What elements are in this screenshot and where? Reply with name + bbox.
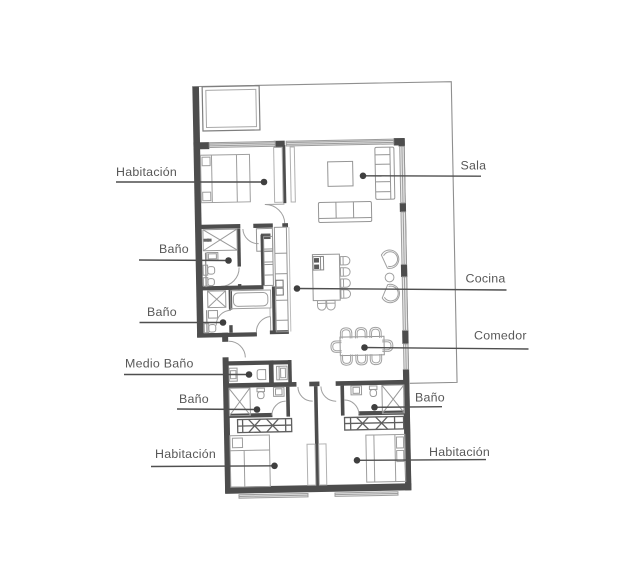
svg-text:Baño: Baño [179,392,209,406]
svg-text:Habitación: Habitación [155,447,216,461]
svg-text:Baño: Baño [159,242,189,256]
svg-text:Habitación: Habitación [429,445,490,459]
svg-text:Cocina: Cocina [466,272,506,286]
svg-text:Comedor: Comedor [474,329,527,343]
svg-text:Medio Baño: Medio Baño [125,357,194,371]
svg-text:Baño: Baño [147,305,177,319]
svg-text:Sala: Sala [461,159,487,173]
svg-text:Baño: Baño [415,391,445,405]
svg-text:Habitación: Habitación [116,165,177,179]
